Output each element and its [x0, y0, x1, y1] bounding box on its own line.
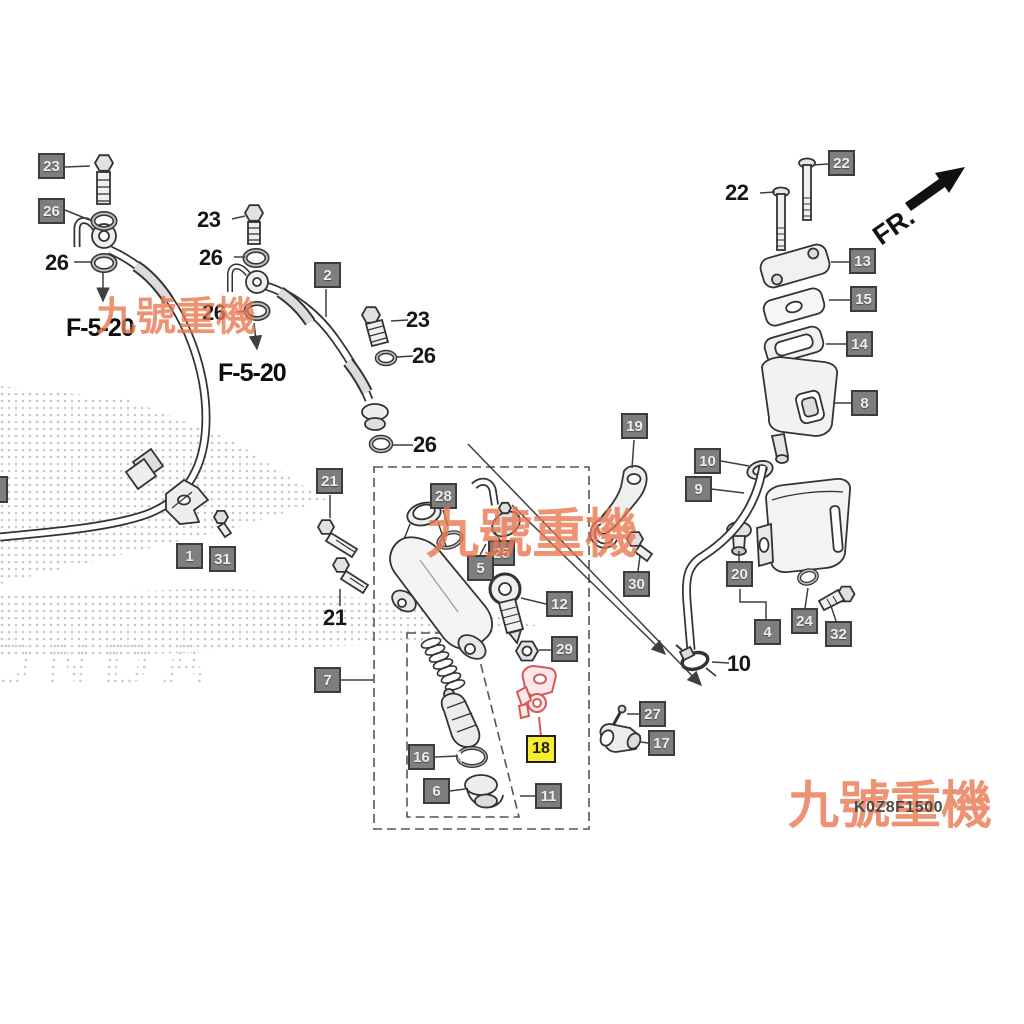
part-label-box-6[interactable]: 6	[423, 778, 450, 804]
part-label-text-10: 10	[727, 651, 750, 677]
part-label-box-16[interactable]: 16	[408, 744, 435, 770]
part-label-box-21[interactable]: 21	[316, 468, 343, 494]
parts-diagram-page: HONDA	[0, 0, 1024, 1024]
diagram-code: K0Z8F1500	[854, 799, 943, 817]
part-label-text-21: 21	[323, 605, 346, 631]
part-label-box-26[interactable]: 26	[38, 198, 65, 224]
seller-watermark: 九號重機	[96, 297, 256, 337]
part-label-box-32[interactable]: 32	[825, 621, 852, 647]
seller-watermark: 九號重機	[426, 508, 638, 561]
part-label-text-26: 26	[45, 250, 68, 276]
part-label-box-29[interactable]: 29	[551, 636, 578, 662]
part-label-box-4[interactable]: 4	[754, 619, 781, 645]
part-label-box-19[interactable]: 19	[621, 413, 648, 439]
part-labels-layer: 2326221282551229716611182717191093020424…	[0, 0, 1024, 1024]
part-label-box-10[interactable]: 10	[694, 448, 721, 474]
part-label-box-31[interactable]: 31	[209, 546, 236, 572]
part-label-text-26: 26	[199, 245, 222, 271]
part-label-box-14[interactable]: 14	[846, 331, 873, 357]
part-label-box-11[interactable]: 11	[535, 783, 562, 809]
part-label-text-26: 26	[413, 432, 436, 458]
cross-reference-label[interactable]: F-5-20	[218, 359, 286, 388]
part-label-text-23: 23	[197, 207, 220, 233]
part-label-box-20[interactable]: 20	[726, 561, 753, 587]
part-label-box-8[interactable]: 8	[851, 390, 878, 416]
part-label-text-23: 23	[406, 307, 429, 333]
part-label-box-13[interactable]: 13	[849, 248, 876, 274]
part-label-text-22: 22	[725, 180, 748, 206]
part-label-box-2[interactable]: 2	[314, 262, 341, 288]
part-label-box-23[interactable]: 23	[38, 153, 65, 179]
part-label-box-22[interactable]: 22	[828, 150, 855, 176]
part-label-box-27[interactable]: 27	[639, 701, 666, 727]
part-label-box-9[interactable]: 9	[685, 476, 712, 502]
part-label-text-26: 26	[412, 343, 435, 369]
part-label-box-12[interactable]: 12	[546, 591, 573, 617]
part-label-box-cropped[interactable]	[0, 476, 8, 503]
part-label-box-30[interactable]: 30	[623, 571, 650, 597]
part-label-box-24[interactable]: 24	[791, 608, 818, 634]
part-label-box-17[interactable]: 17	[648, 730, 675, 756]
part-label-box-highlight-18[interactable]: 18	[526, 735, 556, 763]
part-label-box-15[interactable]: 15	[850, 286, 877, 312]
part-label-box-7[interactable]: 7	[314, 667, 341, 693]
part-label-box-1[interactable]: 1	[176, 543, 203, 569]
